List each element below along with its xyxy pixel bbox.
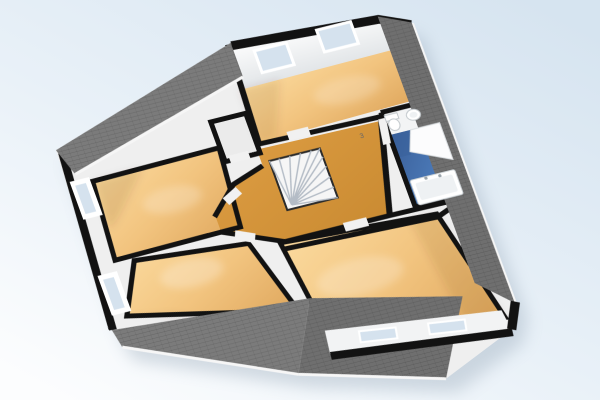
floor-plan-canvas: 3 — [0, 0, 600, 400]
floor-plan-3d-view: 3 — [0, 0, 600, 400]
